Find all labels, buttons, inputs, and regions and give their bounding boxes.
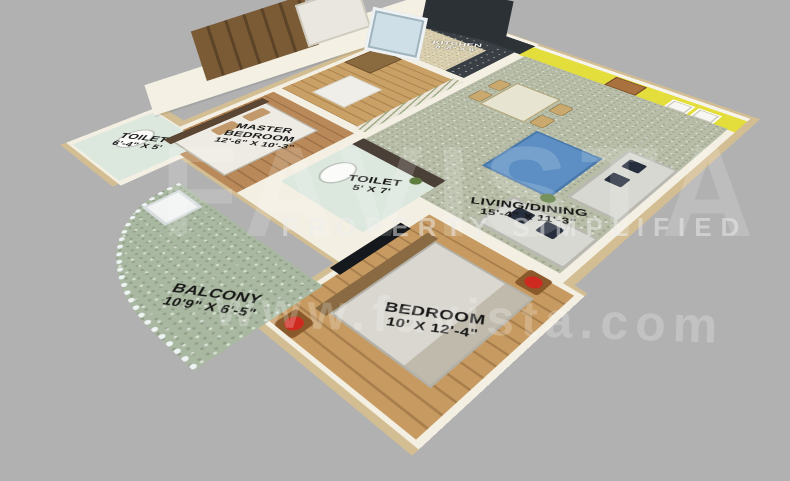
apartment-3d-plan: KITCHEN 8'-8" X 8' TOILET 6'-4" X 5' MAS… [0,10,758,481]
red-lamp [521,274,546,291]
red-lamp [281,314,308,334]
floorplan-render: { "background_color": "#b1b1b1", "waterm… [0,0,790,481]
